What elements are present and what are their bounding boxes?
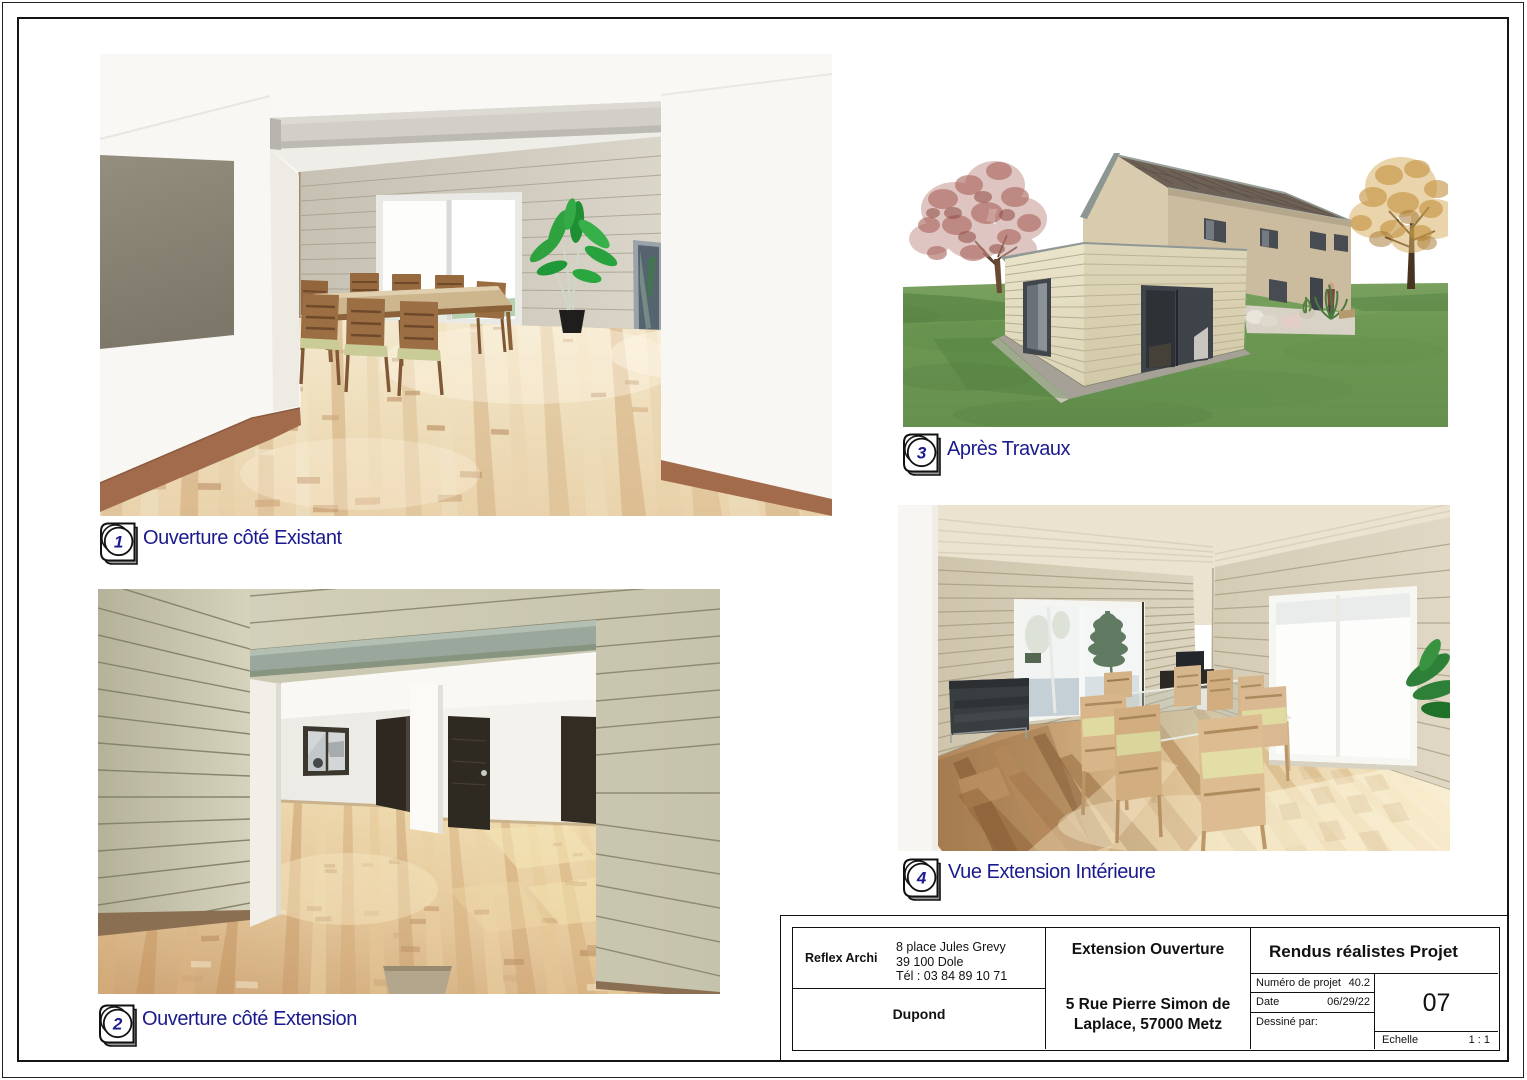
svg-text:2: 2 — [112, 1015, 123, 1034]
svg-text:1: 1 — [114, 533, 123, 552]
svg-text:4: 4 — [916, 869, 927, 888]
svg-text:3: 3 — [917, 444, 927, 463]
